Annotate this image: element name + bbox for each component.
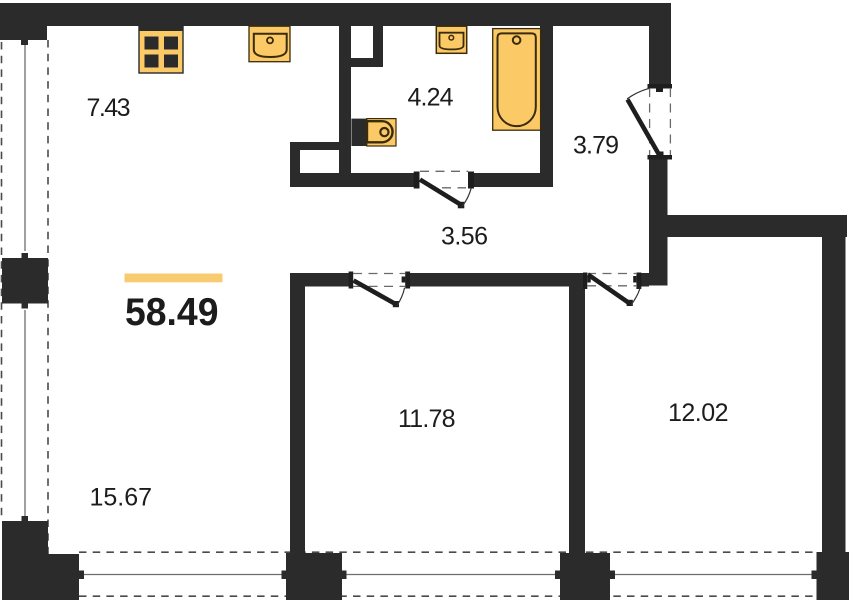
svg-text:7.43: 7.43 <box>87 94 131 122</box>
svg-text:3.79: 3.79 <box>573 132 619 160</box>
svg-text:58.49: 58.49 <box>125 291 219 334</box>
svg-text:15.67: 15.67 <box>90 483 153 511</box>
svg-text:3.56: 3.56 <box>441 223 488 251</box>
svg-text:4.24: 4.24 <box>408 84 454 112</box>
svg-text:11.78: 11.78 <box>398 405 456 433</box>
svg-text:12.02: 12.02 <box>668 399 729 427</box>
